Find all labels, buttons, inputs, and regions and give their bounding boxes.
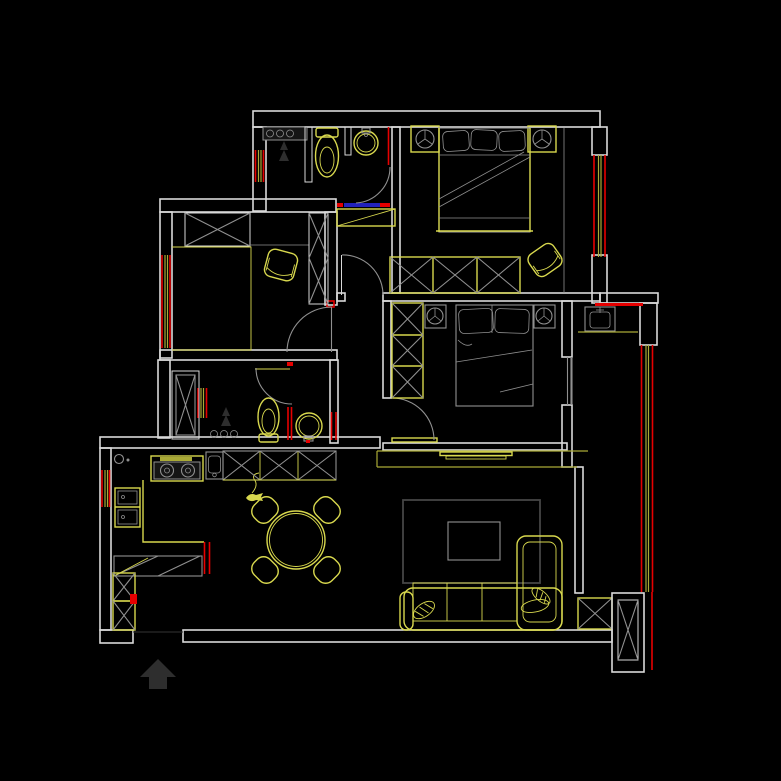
nightstand-left: [411, 126, 439, 152]
window-master-right: [594, 155, 605, 257]
shoe-cabinet: [337, 209, 395, 226]
shower-head-icon: [279, 141, 289, 161]
coffee-table: [448, 522, 500, 560]
shower-controls: [263, 127, 307, 140]
armchair: [525, 241, 564, 280]
wardrobe-master: [390, 257, 520, 293]
doors: [255, 167, 437, 442]
rug: [403, 500, 540, 583]
red-mark-bath-door: [287, 362, 293, 366]
window-bath-top-left: [256, 150, 264, 182]
cooktop: [151, 456, 203, 481]
door-study: [287, 307, 332, 352]
nightstand-right: [528, 126, 556, 152]
red-marker: [130, 594, 137, 604]
north-arrow-icon: [140, 659, 176, 689]
corner-column-x: [612, 593, 644, 672]
floor-plan-drawing: [0, 0, 781, 781]
double-bed-mid: [456, 305, 533, 406]
kitchen: [113, 451, 336, 630]
throw-pillow-left: [410, 598, 437, 622]
master-bedroom: [390, 126, 565, 293]
bathroom-middle: [172, 371, 322, 443]
window-bath-mid-right: [332, 412, 337, 440]
window-kitchen-left: [102, 470, 110, 507]
upper-cabinets-x: [223, 451, 336, 480]
wash-basin: [354, 128, 378, 155]
door-bath-mid: [255, 368, 292, 404]
sliding-window-band: [377, 451, 588, 467]
toilet: [258, 398, 279, 442]
door-corridor: [342, 255, 384, 295]
kitchen-sink: [206, 452, 223, 479]
desk-bed-outline: [172, 247, 251, 350]
double-bed: [436, 128, 533, 232]
window-bedroom2-balcony: [568, 357, 572, 405]
refrigerator: [115, 488, 140, 527]
toilet: [316, 128, 339, 177]
decor-symbol: [246, 473, 263, 501]
shower-head-icon: [221, 407, 231, 426]
floor-plan-canvas: [0, 0, 781, 781]
door-bedroom-mid: [392, 398, 437, 442]
desk-chair: [263, 248, 299, 283]
living-room: [400, 500, 562, 630]
wardrobe-study: [185, 213, 309, 246]
pillows: [442, 129, 525, 152]
nightstand-left: [425, 305, 446, 328]
round-table: [267, 511, 325, 569]
round-basin: [296, 413, 322, 443]
wardrobe-mid: [392, 303, 423, 398]
small-column-x: [578, 598, 612, 629]
column-x-stack: [113, 573, 137, 630]
laundry-basin: [585, 307, 615, 331]
entry-door-blue: [344, 203, 380, 207]
door-bath-top: [356, 167, 390, 203]
storage-cabinet: [172, 371, 199, 439]
nightstand-right: [534, 305, 555, 328]
l-counter-edge: [143, 480, 204, 542]
study-bedroom: [172, 213, 328, 350]
bathroom-top: [263, 127, 378, 182]
gas-meter: [115, 455, 130, 464]
dining-area: [246, 473, 344, 587]
entry-threshold: [337, 203, 395, 226]
window-study-left: [162, 255, 170, 348]
